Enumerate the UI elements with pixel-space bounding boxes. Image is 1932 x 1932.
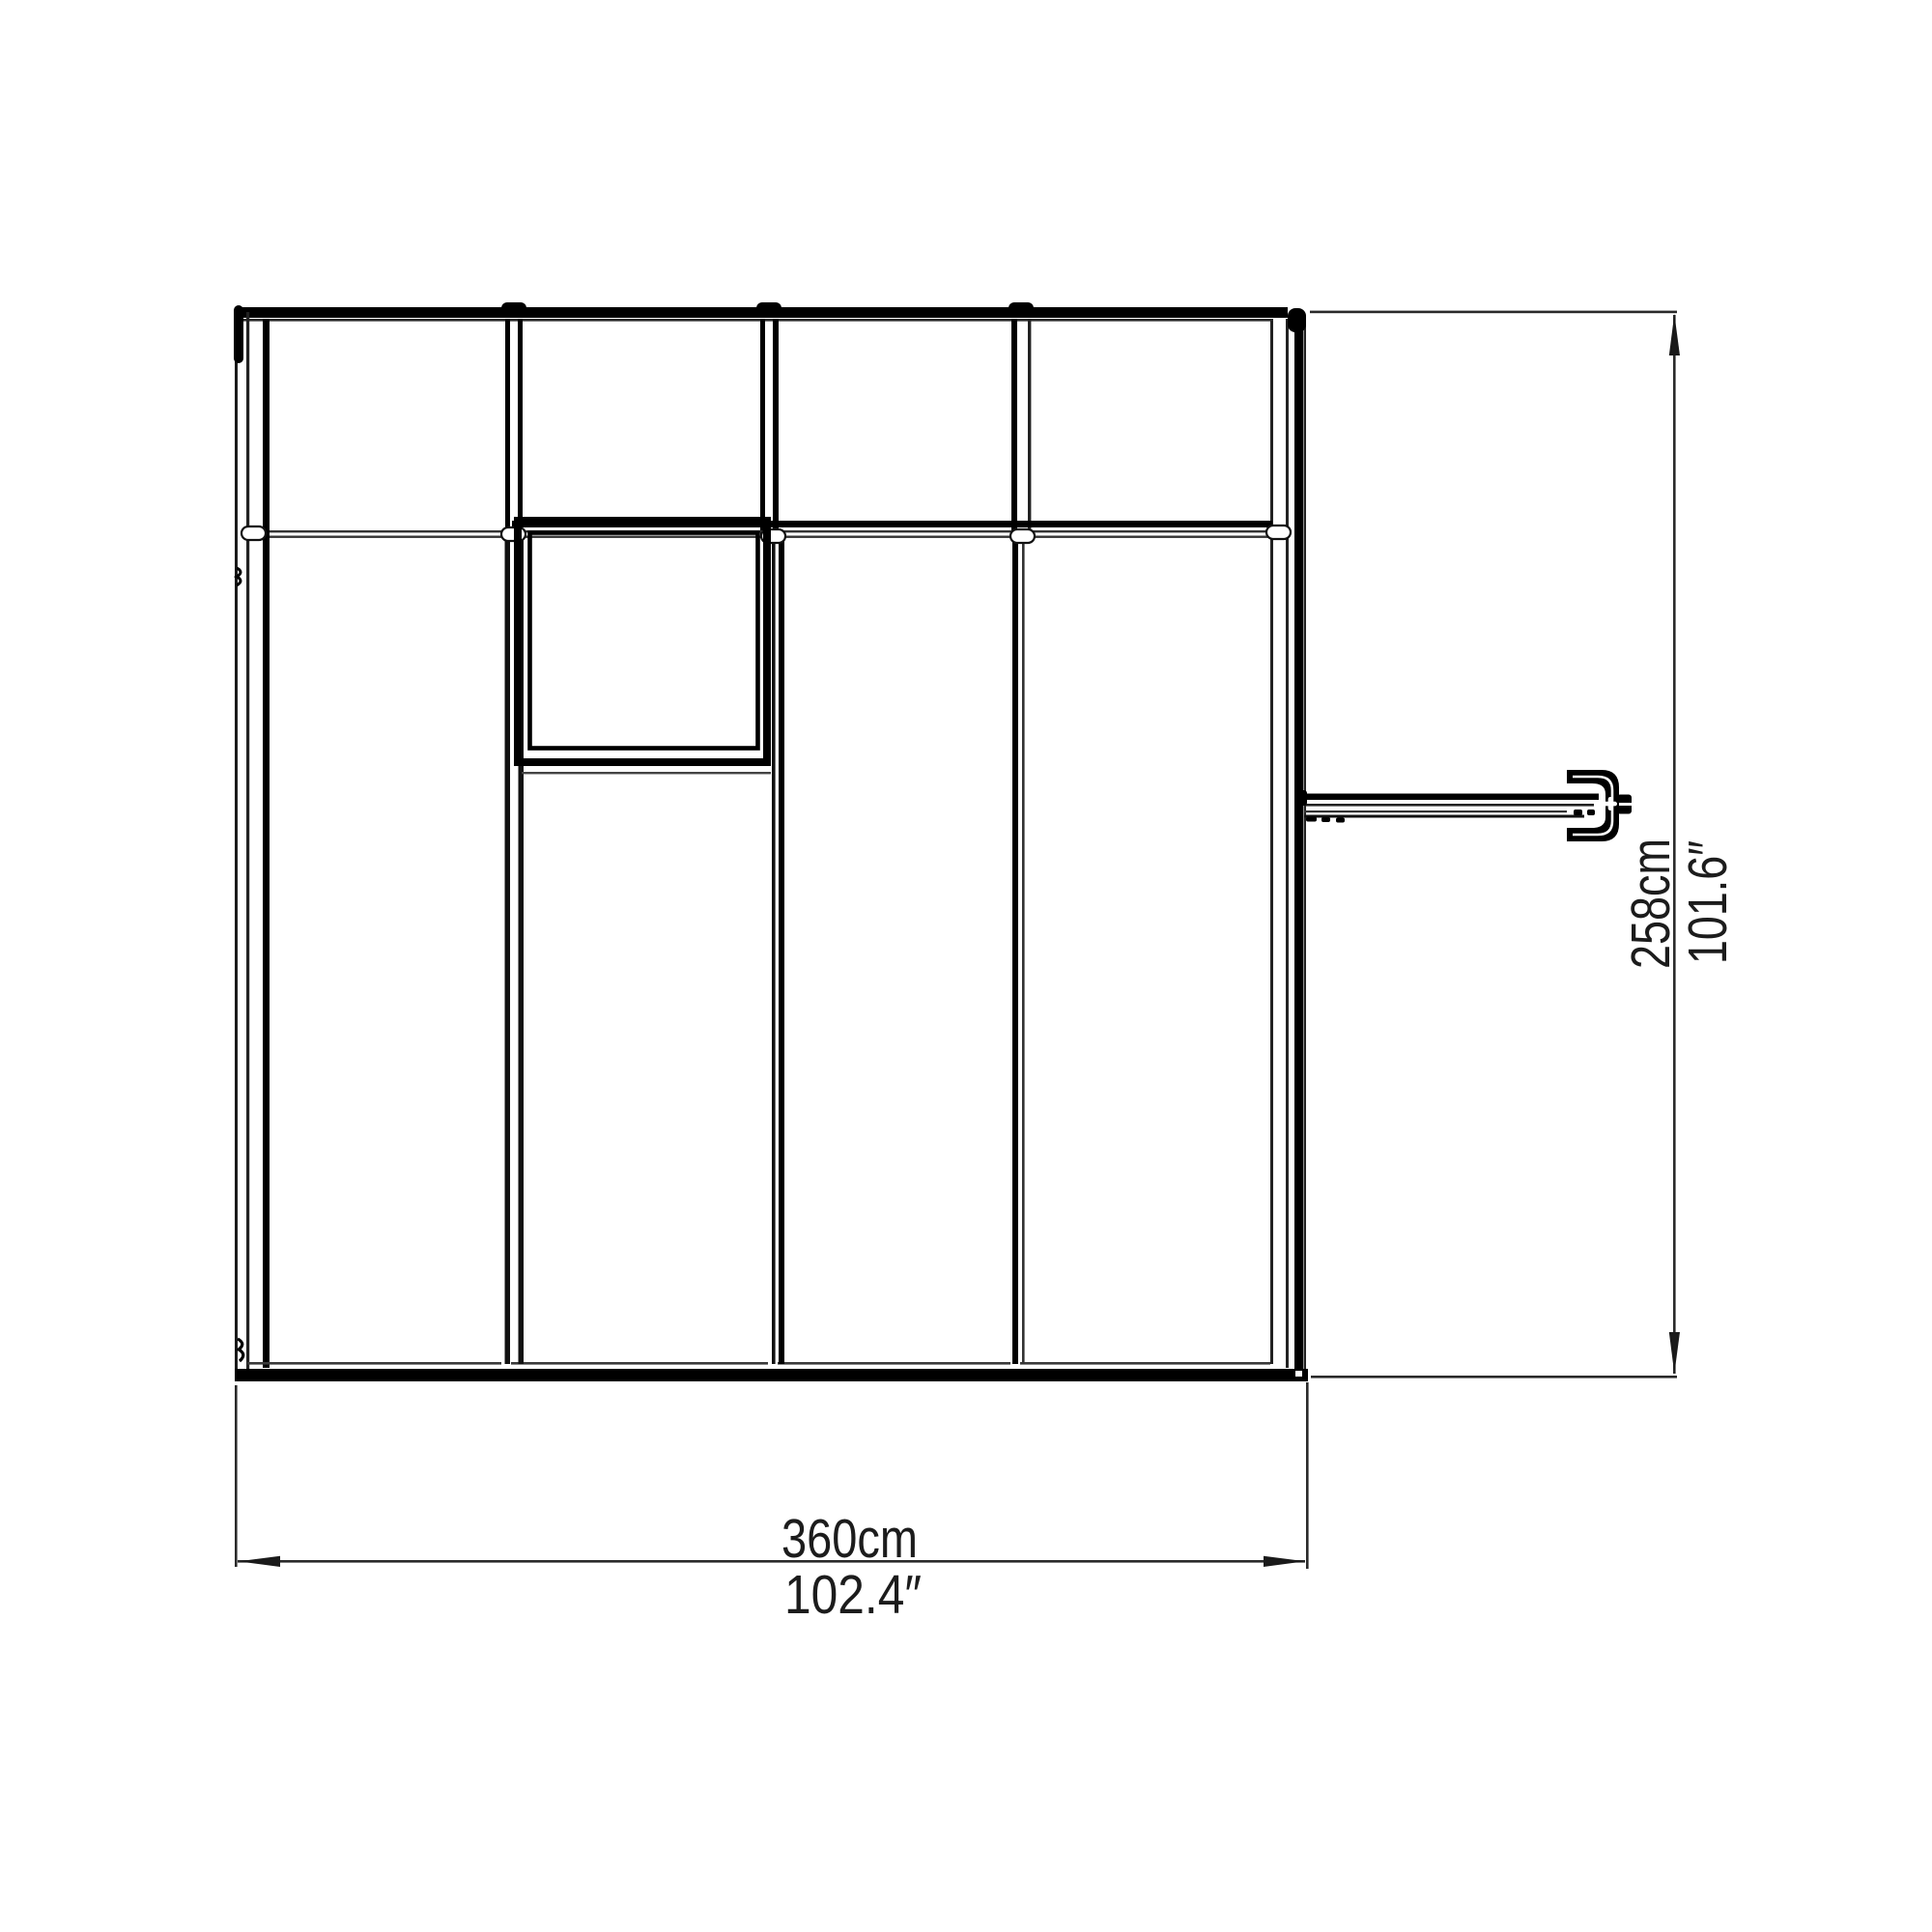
svg-text:102.4″: 102.4″ <box>784 1564 922 1626</box>
svg-text:258cm: 258cm <box>1620 838 1682 969</box>
svg-text:101.6″: 101.6″ <box>1677 840 1739 964</box>
svg-text:360cm: 360cm <box>781 1508 918 1570</box>
